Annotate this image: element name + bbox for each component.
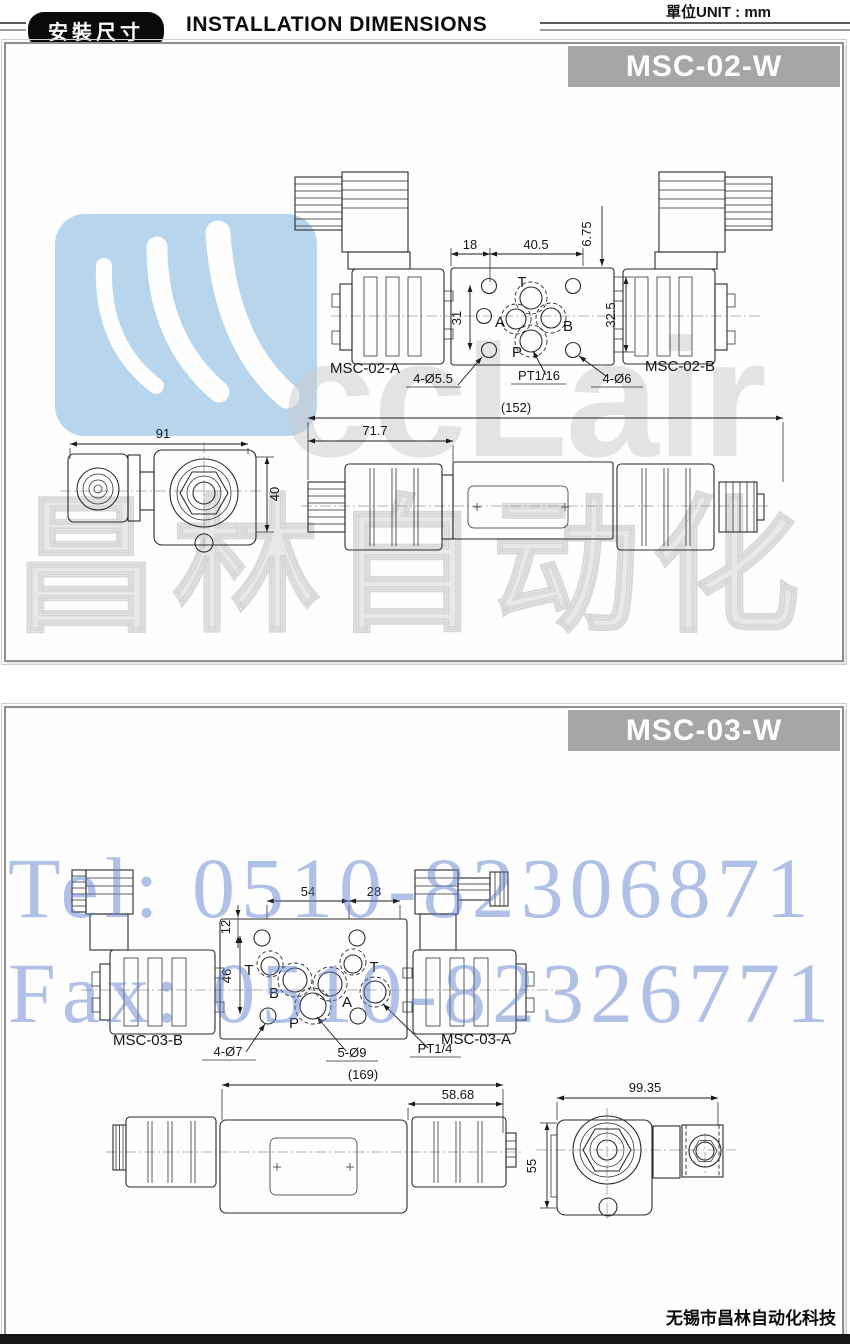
leader-4d7: 4-Ø7 bbox=[214, 1044, 243, 1059]
port-p: P bbox=[512, 344, 522, 361]
port-a: A bbox=[495, 314, 505, 331]
footer-company: 无锡市昌林自动化科技 bbox=[666, 1304, 836, 1329]
dim-32-5: 32.5 bbox=[603, 302, 618, 327]
dim-54: 54 bbox=[301, 884, 315, 899]
panel-msc-03-w: 54 28 12 46 T B A T P 4-Ø7 5-Ø bbox=[4, 706, 844, 1337]
port-a: A bbox=[342, 994, 352, 1011]
catalog-page: 單位UNIT : mm 安裝尺寸 INSTALLATION DIMENSIONS… bbox=[0, 0, 850, 1344]
label-msc-03-a: MSC-03-A bbox=[441, 1031, 511, 1048]
leader-4d6: 4-Ø6 bbox=[603, 371, 632, 386]
dim-91: 91 bbox=[156, 426, 170, 441]
msc03-top-view: 54 28 12 46 T B A T P 4-Ø7 5-Ø bbox=[72, 870, 566, 1061]
port-t1: T bbox=[244, 962, 253, 979]
port-b: B bbox=[269, 985, 279, 1002]
leader-5d9: 5-Ø9 bbox=[338, 1045, 367, 1060]
dim-99-35: 99.35 bbox=[629, 1080, 662, 1095]
dim-152: (152) bbox=[501, 400, 531, 415]
msc03-end-view: 99.35 55 bbox=[524, 1080, 736, 1220]
leader-pt116: PT1/16 bbox=[518, 368, 560, 383]
dim-71-7: 71.7 bbox=[362, 423, 387, 438]
bottom-bar bbox=[0, 1334, 850, 1344]
dim-12: 12 bbox=[218, 920, 233, 934]
model-title-msc-02-w: MSC-02-W bbox=[568, 46, 840, 87]
dim-40-5: 40.5 bbox=[523, 237, 548, 252]
dim-169: (169) bbox=[348, 1067, 378, 1082]
label-msc-02-a: MSC-02-A bbox=[330, 360, 400, 377]
dim-46: 46 bbox=[219, 969, 234, 983]
port-p: P bbox=[289, 1015, 299, 1032]
msc03-side-view: (169) 58.68 bbox=[106, 1067, 524, 1213]
panel-msc-02-w: ccLair 昌林自动化 bbox=[4, 42, 844, 662]
dim-55: 55 bbox=[524, 1159, 539, 1173]
dim-58-68: 58.68 bbox=[442, 1087, 475, 1102]
dim-6-75: 6.75 bbox=[579, 221, 594, 246]
dim-40: 40 bbox=[267, 487, 282, 501]
label-msc-03-b: MSC-03-B bbox=[113, 1032, 183, 1049]
port-t2: T bbox=[369, 959, 378, 976]
dim-28: 28 bbox=[367, 884, 381, 899]
dim-18: 18 bbox=[463, 237, 477, 252]
watermark-cn: 昌林自动化 bbox=[12, 485, 812, 650]
page-title: INSTALLATION DIMENSIONS bbox=[186, 13, 487, 37]
watermark-logo bbox=[55, 214, 317, 436]
label-msc-02-b: MSC-02-B bbox=[645, 358, 715, 375]
dim-31: 31 bbox=[449, 311, 464, 325]
header-rule-right bbox=[540, 22, 850, 31]
leader-4d55: 4-Ø5.5 bbox=[413, 371, 453, 386]
model-title-msc-03-w: MSC-03-W bbox=[568, 710, 840, 751]
port-t: T bbox=[517, 274, 526, 291]
port-b: B bbox=[563, 318, 573, 335]
header-rule-left bbox=[0, 22, 26, 31]
msc-03-drawing: 54 28 12 46 T B A T P 4-Ø7 5-Ø bbox=[6, 708, 838, 1329]
msc-02-drawing: ccLair 昌林自动化 bbox=[6, 44, 838, 654]
unit-note: 單位UNIT : mm bbox=[666, 1, 771, 22]
